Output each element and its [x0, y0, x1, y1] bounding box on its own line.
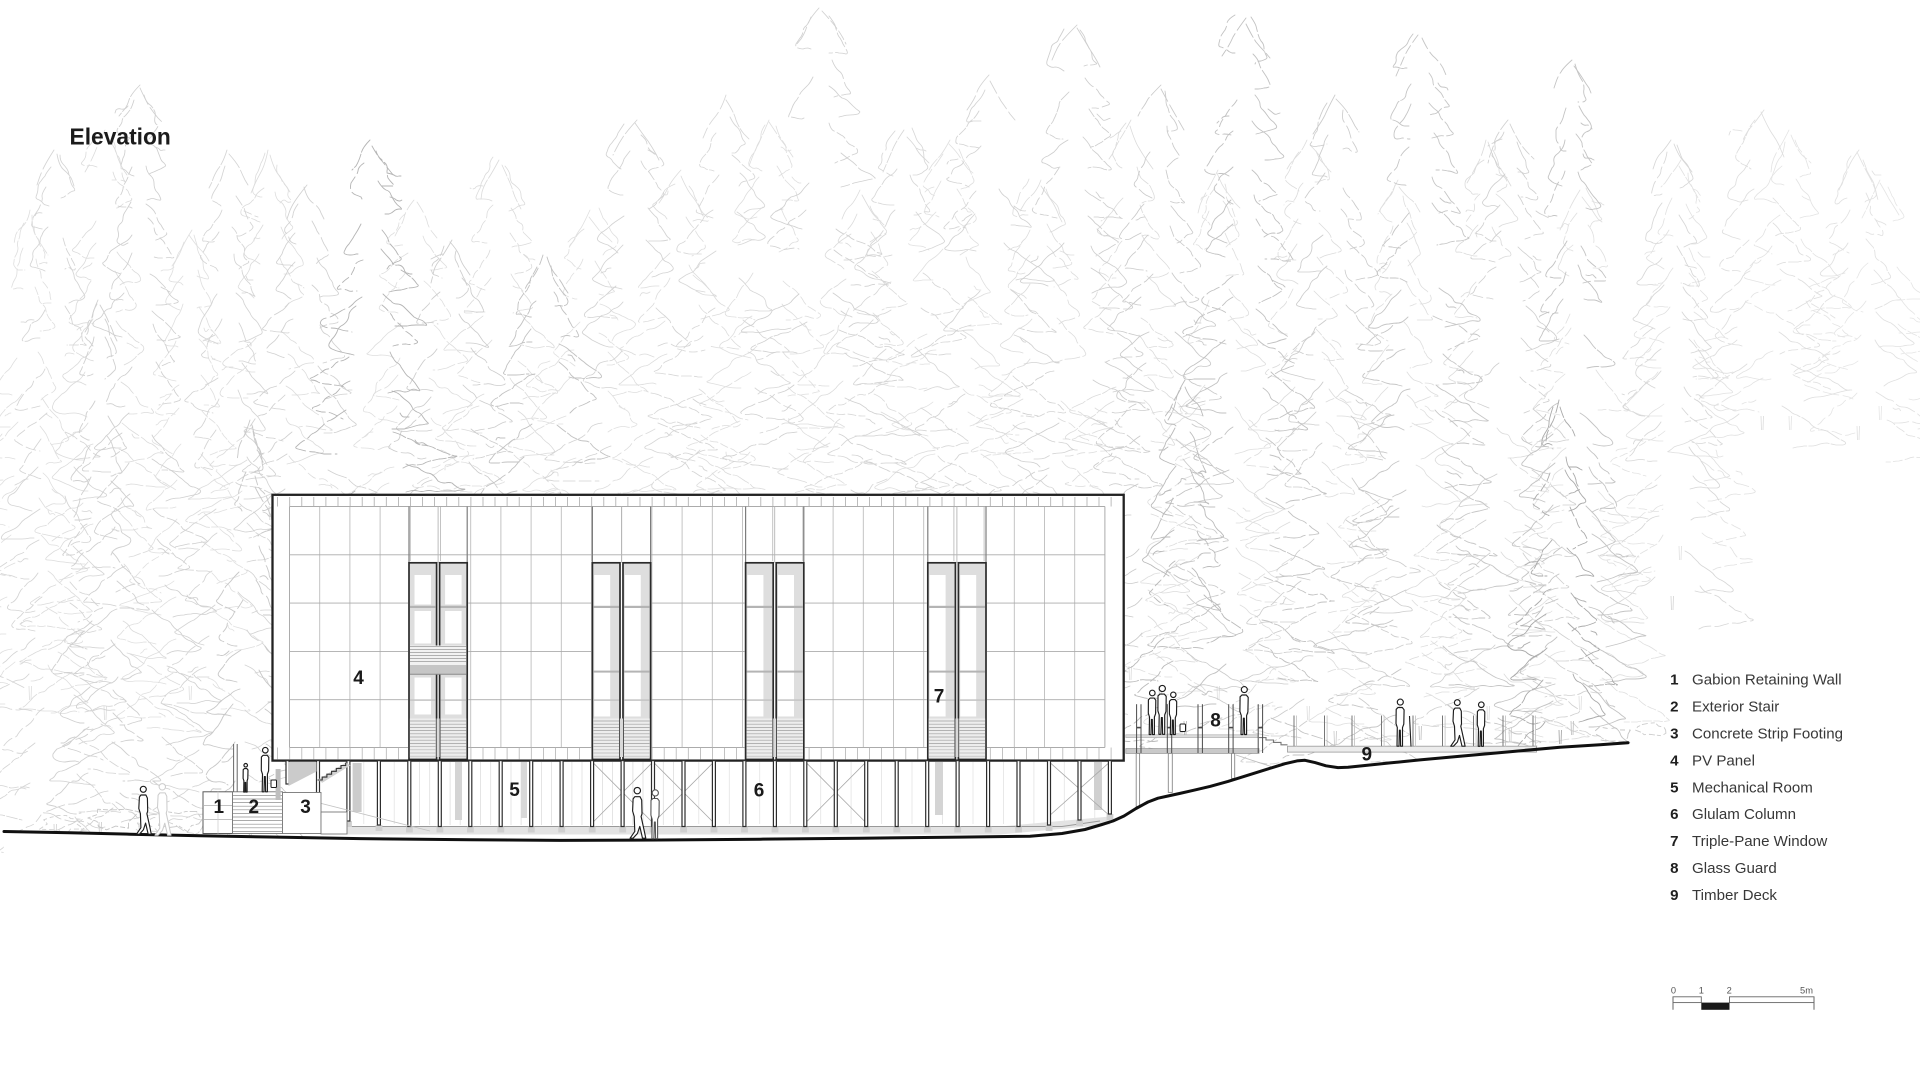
svg-text:Mechanical Room: Mechanical Room: [1692, 779, 1813, 796]
svg-text:Exterior Stair: Exterior Stair: [1692, 699, 1779, 716]
svg-text:7: 7: [934, 686, 945, 707]
svg-text:Triple-Pane Window: Triple-Pane Window: [1692, 833, 1827, 850]
svg-text:Gabion Retaining Wall: Gabion Retaining Wall: [1692, 672, 1842, 689]
svg-text:9: 9: [1362, 744, 1373, 765]
svg-text:2: 2: [1727, 985, 1732, 995]
svg-text:Glulam Column: Glulam Column: [1692, 806, 1796, 823]
svg-text:1: 1: [1670, 672, 1678, 689]
svg-text:2: 2: [1670, 699, 1678, 716]
svg-text:8: 8: [1670, 860, 1678, 877]
svg-text:7: 7: [1670, 833, 1678, 850]
svg-text:4: 4: [1670, 752, 1679, 769]
svg-text:5: 5: [1670, 779, 1678, 796]
svg-text:2: 2: [249, 797, 260, 818]
svg-text:PV Panel: PV Panel: [1692, 752, 1755, 769]
svg-text:6: 6: [1670, 806, 1678, 823]
svg-text:5m: 5m: [1800, 985, 1813, 995]
svg-text:4: 4: [353, 668, 364, 689]
svg-text:3: 3: [1670, 725, 1678, 742]
svg-text:1: 1: [1699, 985, 1704, 995]
svg-text:3: 3: [300, 797, 311, 818]
svg-text:Glass Guard: Glass Guard: [1692, 860, 1777, 877]
svg-text:0: 0: [1671, 985, 1676, 995]
svg-text:8: 8: [1210, 710, 1221, 731]
svg-text:6: 6: [754, 780, 765, 801]
svg-text:5: 5: [509, 780, 520, 801]
svg-text:1: 1: [214, 797, 225, 818]
svg-text:Elevation: Elevation: [70, 124, 171, 150]
svg-text:Timber Deck: Timber Deck: [1692, 887, 1777, 904]
svg-text:Concrete Strip Footing: Concrete Strip Footing: [1692, 725, 1843, 742]
svg-text:9: 9: [1670, 887, 1678, 904]
